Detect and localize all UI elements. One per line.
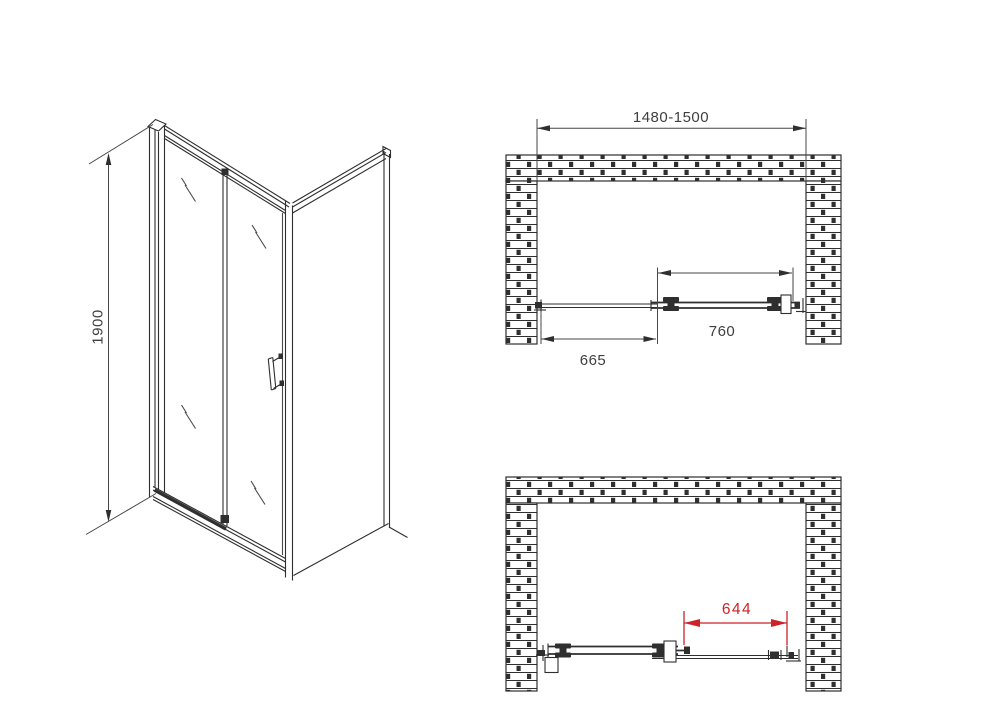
handle-plan: [781, 295, 791, 314]
dimension-opening-width: 644: [684, 601, 787, 645]
door-edge-stop: [684, 647, 690, 655]
door-divider: [221, 169, 230, 527]
plan-view-closed: 1480-1500: [506, 109, 841, 369]
wall-right-column: [806, 181, 841, 344]
glass-shine-icon: [182, 405, 196, 429]
dim-label-height: 1900: [90, 309, 107, 344]
center-bracket: [664, 641, 676, 662]
dim-label-door-width: 760: [709, 323, 736, 340]
isometric-view: 1900: [86, 120, 408, 581]
dimension-fixed-panel: 665: [541, 311, 656, 369]
shower-door-technical-drawing: 1900 1480-1500: [0, 0, 1000, 707]
wall-right-column: [806, 503, 841, 691]
fixed-panel-plan: [534, 300, 657, 313]
glass-shine-icon: [251, 481, 265, 505]
handle-plan: [545, 658, 558, 673]
drawing-svg: 1900 1480-1500: [0, 0, 1000, 707]
plan-view-open: 644: [506, 477, 841, 691]
dimension-height: 1900: [86, 125, 156, 535]
wall-top-band: [506, 155, 841, 181]
wall-top-band: [506, 477, 841, 503]
sliding-door-plan: [536, 641, 801, 673]
right-wall-fixture: [795, 298, 807, 313]
dim-label-opening-width: 644: [722, 601, 752, 618]
glass-shine-icon: [182, 178, 196, 202]
glass-shine-icon: [252, 225, 266, 249]
bottom-rail: [153, 487, 286, 572]
wall-left-column: [506, 503, 537, 691]
wall-left-column: [506, 181, 537, 344]
side-return-panel: [293, 147, 408, 576]
left-wall-profile: [148, 120, 166, 498]
right-front-post: [283, 201, 293, 581]
sliding-door-plan: [651, 295, 806, 314]
door-handle: [268, 354, 284, 391]
dim-label-overall-width: 1480-1500: [633, 109, 709, 126]
dim-label-fixed-panel: 665: [580, 352, 607, 369]
